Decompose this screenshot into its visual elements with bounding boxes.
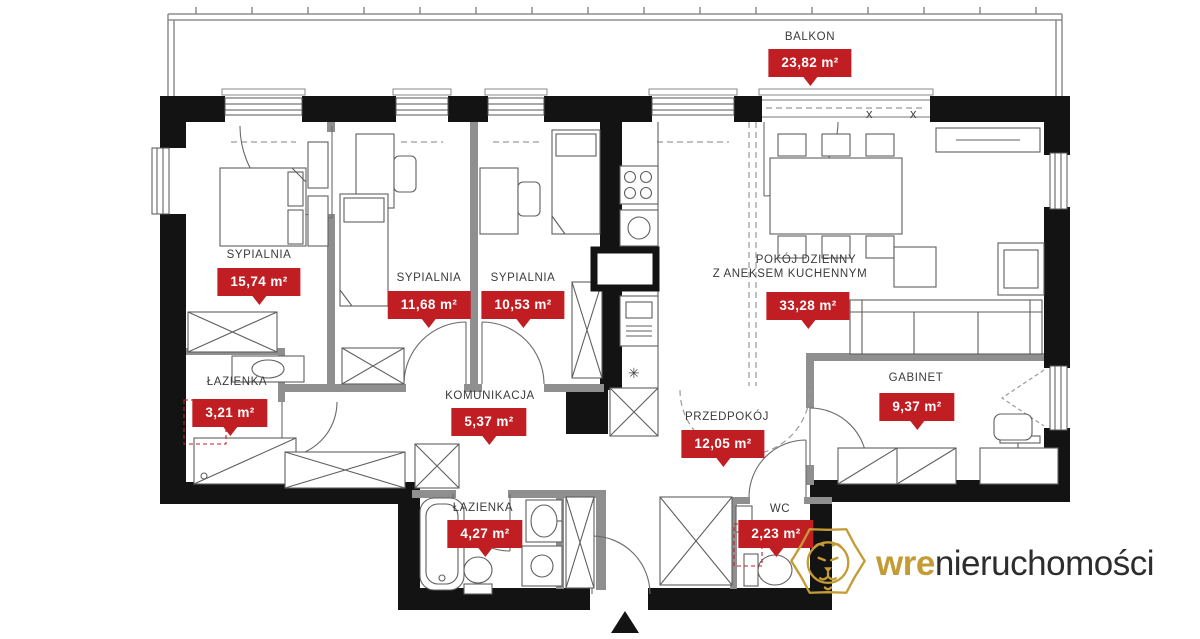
brand-logo-text-light: nieruchomości [935,544,1154,583]
brand-logo: wrenieruchomości [789,522,1154,605]
area-badge-sypialnia-1: 15,74 m² [217,268,300,296]
room-label-przedpokoj: PRZEDPOKÓJ [685,411,769,424]
balcony-door-mark-1: x [866,106,873,121]
room-label-sypialnia-2: SYPIALNIA [397,272,462,285]
balcony-door-mark-2: x [910,106,917,121]
balcony-railing [168,7,1062,96]
area-badge-pokoj-dzienny: 33,28 m² [766,292,849,320]
room-label-wc: WC [770,503,790,516]
room-label-gabinet: GABINET [889,372,944,385]
room-label-pokoj-dzienny-line2: Z ANEKSEM KUCHENNYM [713,268,868,281]
entrance-arrow [611,611,639,633]
room-label-pokoj-dzienny-line1: POKÓJ DZIENNY [756,254,856,267]
lion-icon [789,522,867,605]
floorplan-page: x x ✳ BALKON SYPIALNIA SYPIALNIA SYPIALN… [0,0,1200,639]
area-badge-lazienka-1: 3,21 m² [192,399,267,427]
brand-logo-text-bold: wre [876,544,935,583]
room-label-lazienka-2: ŁAZIENKA [453,502,513,515]
room-label-komunikacja: KOMUNIKACJA [445,390,535,403]
area-badge-komunikacja: 5,37 m² [451,408,526,436]
area-badge-sypialnia-3: 10,53 m² [481,291,564,319]
kitchen-star-symbol: ✳ [628,365,640,381]
room-label-lazienka-1: ŁAZIENKA [207,376,267,389]
room-label-balkon: BALKON [785,31,835,44]
brand-logo-text: wrenieruchomości [876,544,1154,584]
area-badge-sypialnia-2: 11,68 m² [388,291,471,319]
area-badge-lazienka-2: 4,27 m² [447,520,522,548]
room-label-sypialnia-3: SYPIALNIA [491,272,556,285]
area-badge-przedpokoj: 12,05 m² [681,430,764,458]
room-label-sypialnia-1: SYPIALNIA [227,249,292,262]
area-badge-balkon: 23,82 m² [768,49,851,77]
area-badge-gabinet: 9,37 m² [879,393,954,421]
